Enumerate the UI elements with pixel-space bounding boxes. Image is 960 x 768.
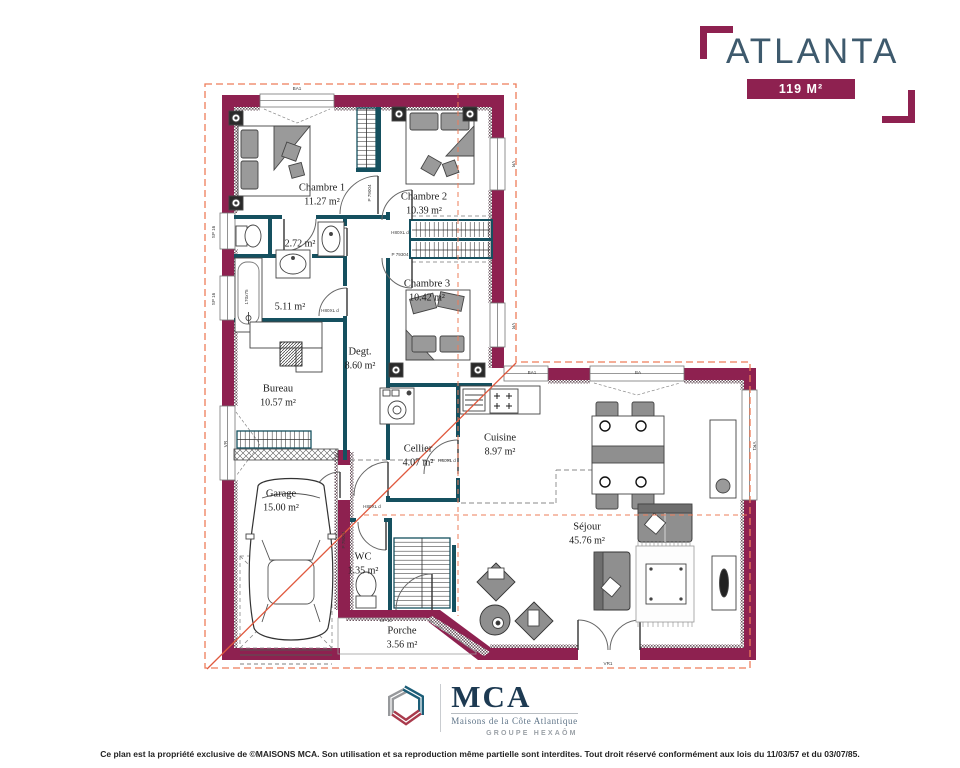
plan-title: ATLANTA	[726, 32, 886, 72]
plan-micro-label: SP 16	[211, 225, 216, 238]
plan-micro-label: P 79004	[367, 184, 372, 201]
plan-micro-label: VR	[223, 440, 228, 447]
logo-divider	[440, 684, 441, 732]
mca-cube-icon	[382, 682, 430, 734]
plan-micro-label: H80XL d	[363, 504, 381, 509]
plan-micro-label: SP 16	[211, 292, 216, 305]
plan-micro-label: 170x75	[244, 289, 249, 305]
company-logo: MCA Maisons de la Côte Atlantique GROUPE…	[0, 682, 960, 737]
plan-micro-label: SP 10	[380, 618, 393, 623]
plan-micro-label: VR	[511, 323, 516, 330]
plan-micro-label: BA1	[528, 370, 537, 375]
plan-micro-label: BA1	[293, 86, 302, 91]
title-block: ATLANTA 119 M²	[690, 18, 920, 118]
plan-micro-label: VR1	[604, 661, 613, 666]
plan-micro-label: P 79004	[341, 531, 346, 548]
logo-name: MCA	[451, 682, 577, 711]
total-area-badge: 119 M²	[747, 79, 855, 99]
bureau-south-wall	[234, 449, 338, 460]
title-bracket-bottom-right-icon	[882, 90, 915, 123]
plan-micro-label: P 79304	[391, 252, 408, 257]
plan-micro-label: BA	[635, 370, 642, 375]
plan-micro-label: VR	[511, 161, 516, 168]
logo-group-name: GROUPE HEXAÔM	[451, 730, 577, 737]
plan-micro-label: VR1	[752, 442, 757, 451]
copyright-notice: Ce plan est la propriété exclusive de ©M…	[0, 749, 960, 759]
plan-micro-label: H80XL d	[438, 458, 456, 463]
logo-text: MCA Maisons de la Côte Atlantique GROUPE…	[451, 682, 577, 737]
plan-micro-label: H80XL d	[321, 308, 339, 313]
logo-tagline: Maisons de la Côte Atlantique	[451, 713, 577, 726]
plan-micro-label: H80XL d	[391, 230, 409, 235]
